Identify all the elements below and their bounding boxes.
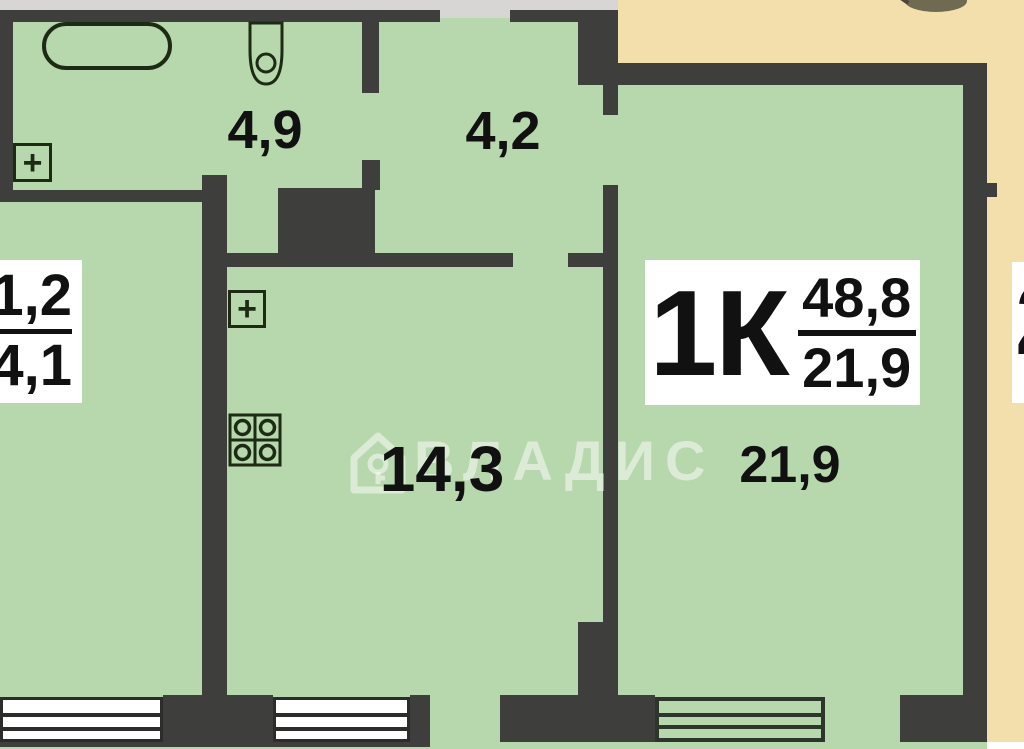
wall	[963, 63, 987, 742]
apartment-badge: 1К 48,8 21,9	[645, 260, 920, 405]
apartment-living-area: 21,9	[802, 339, 911, 396]
kitchen-area-label: 14,3	[380, 432, 505, 506]
hallway-area-label: 4,2	[465, 100, 540, 162]
window-living-room	[655, 697, 825, 742]
apartment-areas: 48,8 21,9	[798, 269, 916, 395]
fraction-line	[798, 330, 916, 336]
floor-plan: + + ВЛАДИС 4,9 4,2 14,3 21,9 1К 48,8 21,…	[0, 0, 1024, 749]
bathroom-area-label: 4,9	[227, 99, 302, 161]
electric-panel-icon: +	[13, 143, 52, 182]
neighbor-left-badge: 1,2 4,1	[0, 260, 82, 403]
electric-panel-icon: +	[228, 290, 266, 328]
neighbor-left-top: 1,2	[0, 266, 72, 327]
living-room-area-label: 21,9	[739, 435, 840, 495]
wall	[603, 85, 618, 115]
wall-stub	[987, 183, 997, 197]
wall	[163, 695, 273, 742]
wall	[578, 622, 618, 697]
corridor-strip	[0, 0, 618, 10]
toilet-icon	[246, 20, 286, 90]
wall	[568, 253, 605, 267]
wall	[0, 10, 13, 202]
wall	[410, 695, 430, 742]
wall	[500, 695, 655, 742]
wall	[225, 253, 513, 267]
neighbor-left-bottom: 4,1	[0, 336, 72, 397]
neighbor-right-partial-digit: 2	[1015, 270, 1024, 370]
apartment-type: 1К	[649, 272, 787, 394]
apartment-total-area: 48,8	[802, 269, 911, 326]
wall	[202, 175, 227, 697]
wall	[362, 10, 379, 93]
wall	[578, 10, 618, 85]
window-left-room	[0, 697, 163, 742]
stove-icon	[228, 413, 282, 467]
vent-shaft	[278, 188, 375, 260]
neighbor-right-badge: 2	[1012, 262, 1024, 403]
window-kitchen	[273, 697, 410, 742]
wall	[362, 160, 380, 190]
outside-area-top	[618, 0, 1024, 63]
bathtub-icon	[42, 22, 172, 70]
outside-area-bottom-right	[987, 742, 1024, 749]
wall	[900, 695, 987, 742]
wall	[603, 185, 618, 622]
entrance-doorway	[440, 0, 510, 18]
wall	[615, 63, 987, 85]
wall-edge-line	[0, 742, 430, 747]
wall	[0, 190, 207, 202]
